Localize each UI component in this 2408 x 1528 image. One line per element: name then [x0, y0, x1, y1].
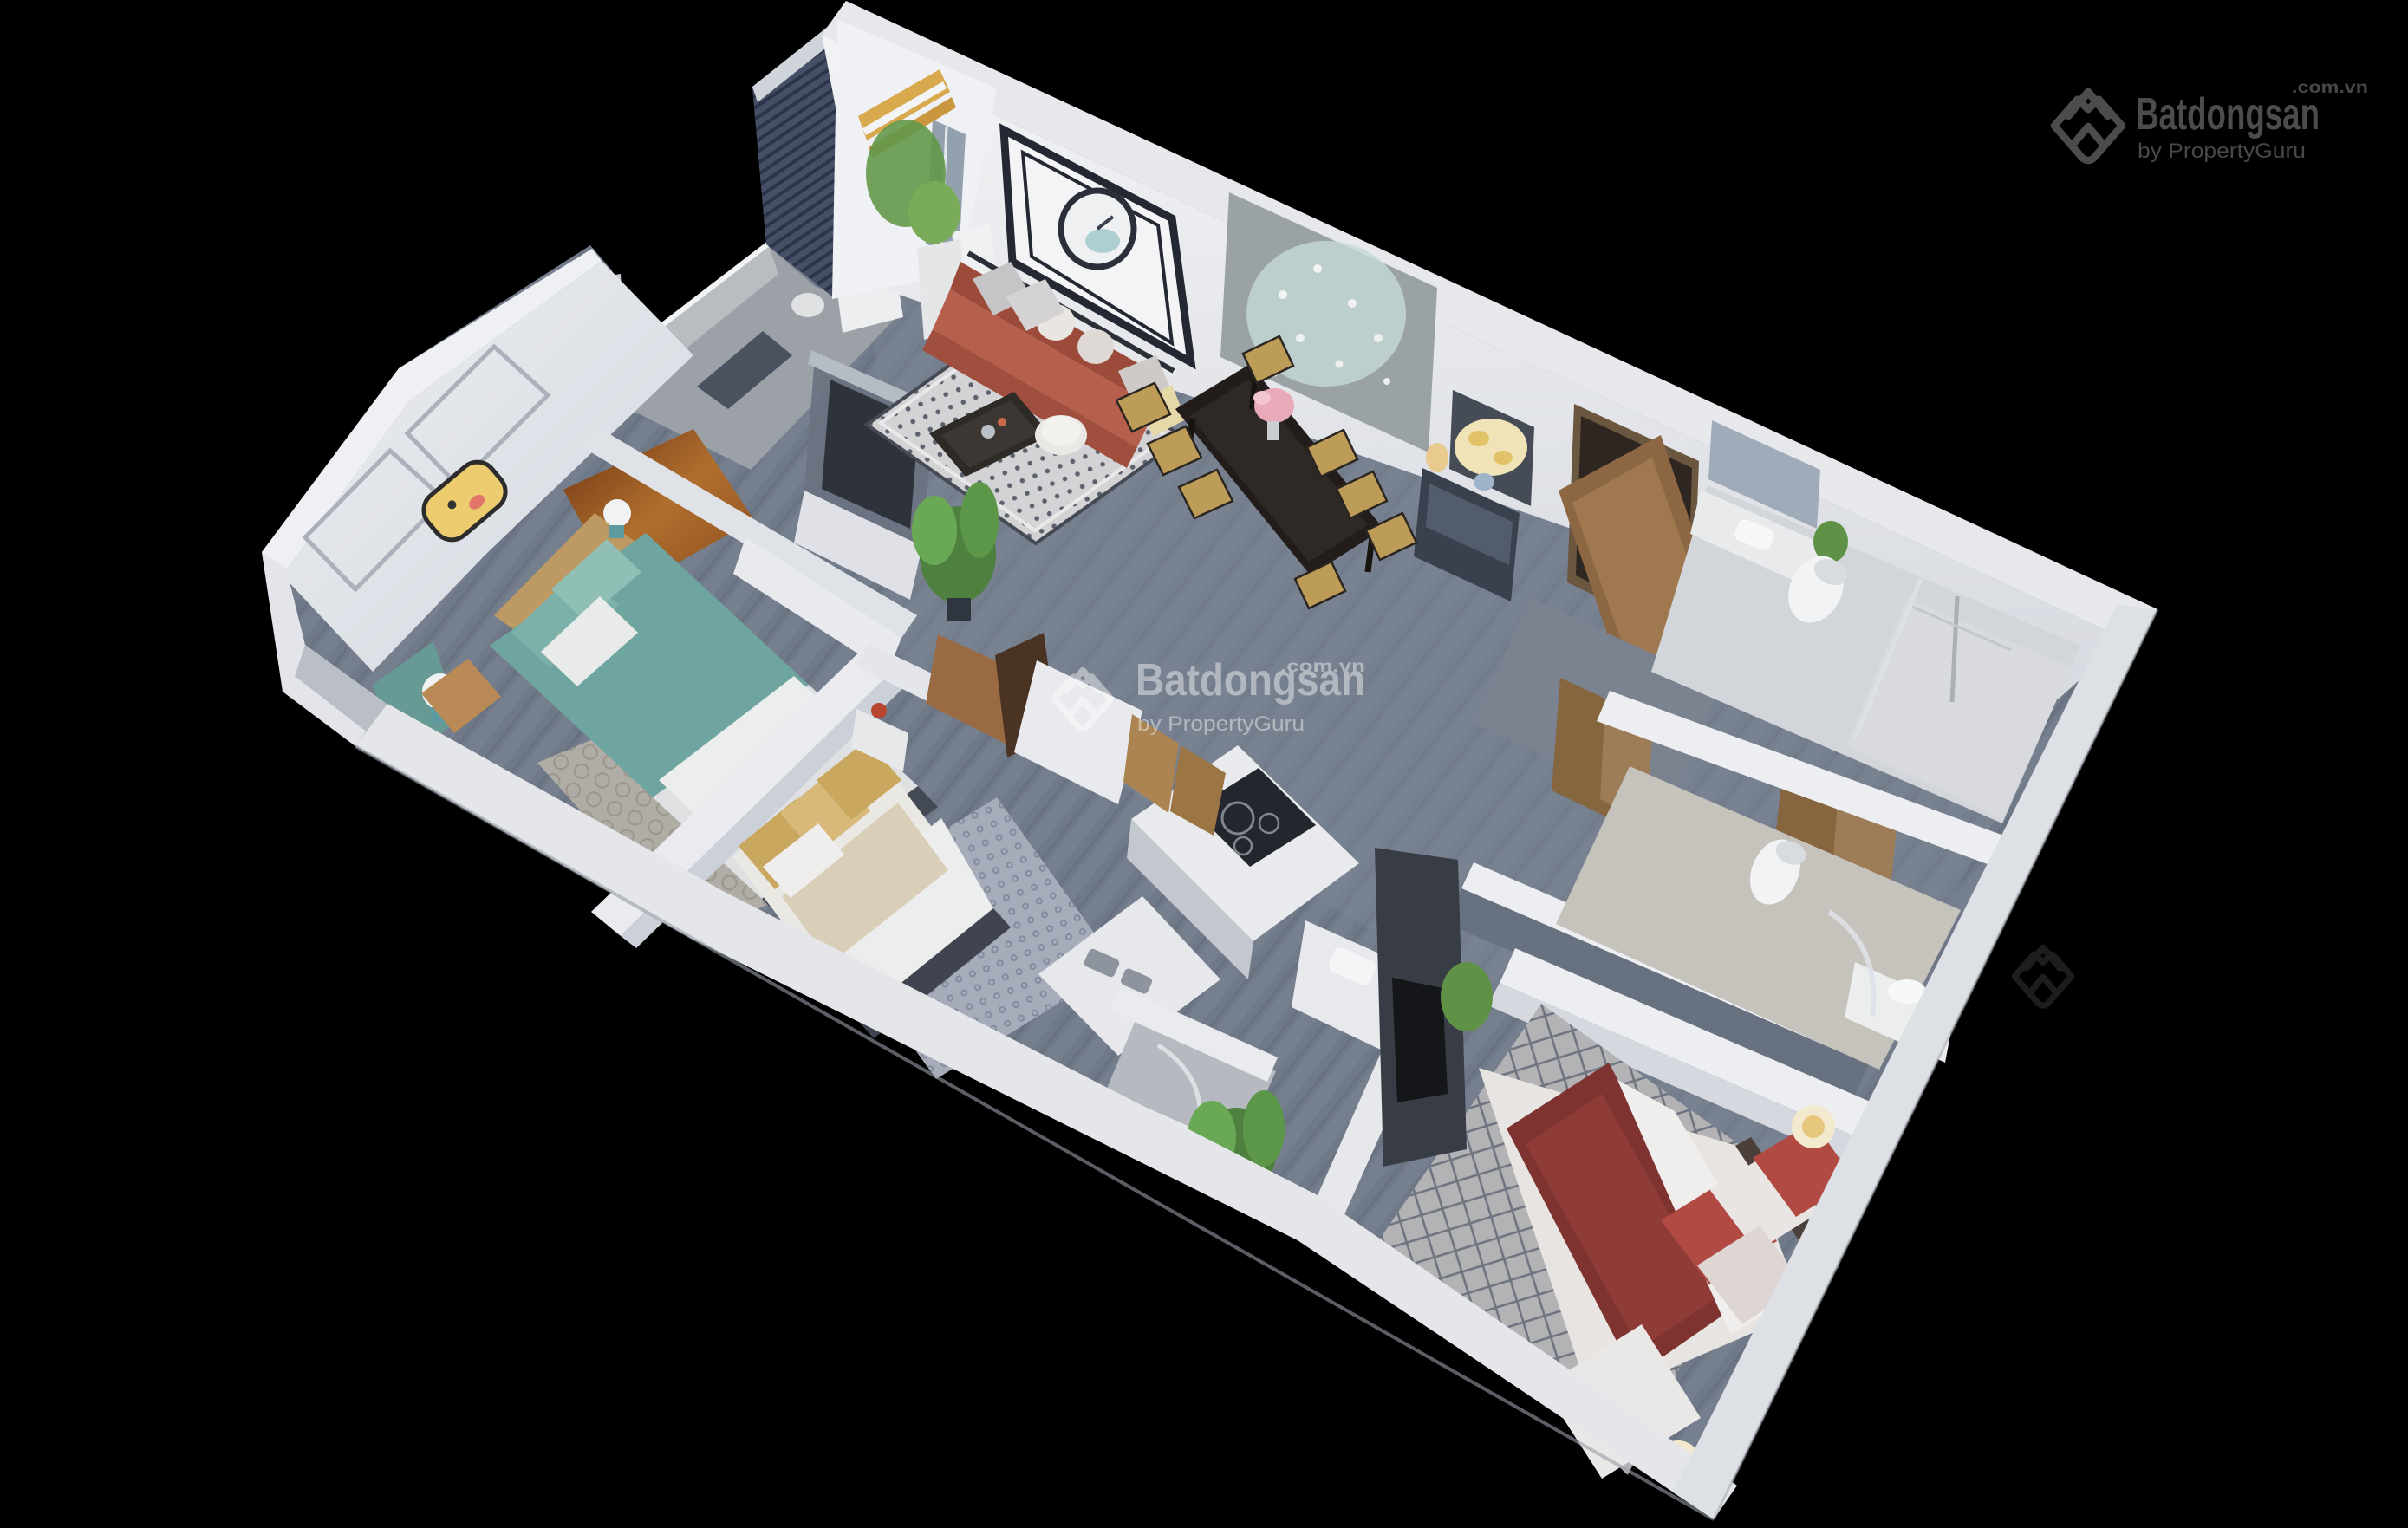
svg-text:by PropertyGuru: by PropertyGuru [1137, 712, 1305, 736]
svg-text:by PropertyGuru: by PropertyGuru [2138, 140, 2306, 163]
svg-text:.com.vn: .com.vn [2292, 79, 2368, 97]
svg-text:.com.vn: .com.vn [1280, 658, 1365, 676]
